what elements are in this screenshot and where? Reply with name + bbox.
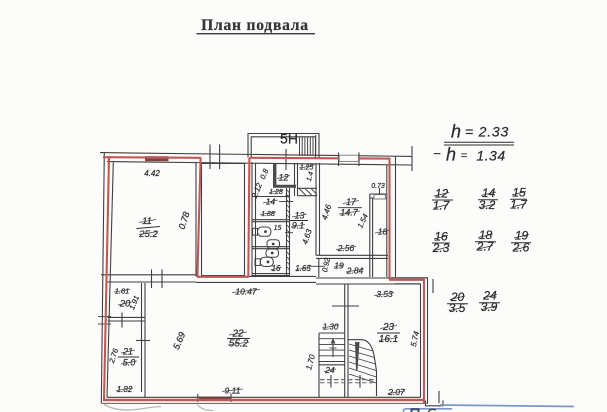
svg-text:1.30: 1.30 xyxy=(323,323,339,332)
svg-text:1.34: 1.34 xyxy=(476,148,505,164)
svg-text:=: = xyxy=(461,150,468,162)
svg-text:0.73: 0.73 xyxy=(371,183,385,190)
svg-text:4.42: 4.42 xyxy=(144,169,160,178)
svg-text:3.9: 3.9 xyxy=(481,300,498,314)
svg-text:1.7: 1.7 xyxy=(433,199,451,213)
svg-text:3.5: 3.5 xyxy=(449,301,466,315)
svg-text:16.1: 16.1 xyxy=(379,334,398,345)
svg-text:План подвала: План подвала xyxy=(201,17,309,34)
svg-text:= 2.33: = 2.33 xyxy=(465,124,509,140)
svg-text:h: h xyxy=(451,122,461,142)
svg-text:1.88: 1.88 xyxy=(261,211,275,218)
svg-text:−: − xyxy=(433,146,441,161)
svg-text:15: 15 xyxy=(274,225,282,232)
svg-text:1.25: 1.25 xyxy=(300,165,314,172)
svg-text:h: h xyxy=(446,145,456,165)
svg-text:55.2: 55.2 xyxy=(229,339,249,350)
svg-text:5Н: 5Н xyxy=(280,131,298,147)
